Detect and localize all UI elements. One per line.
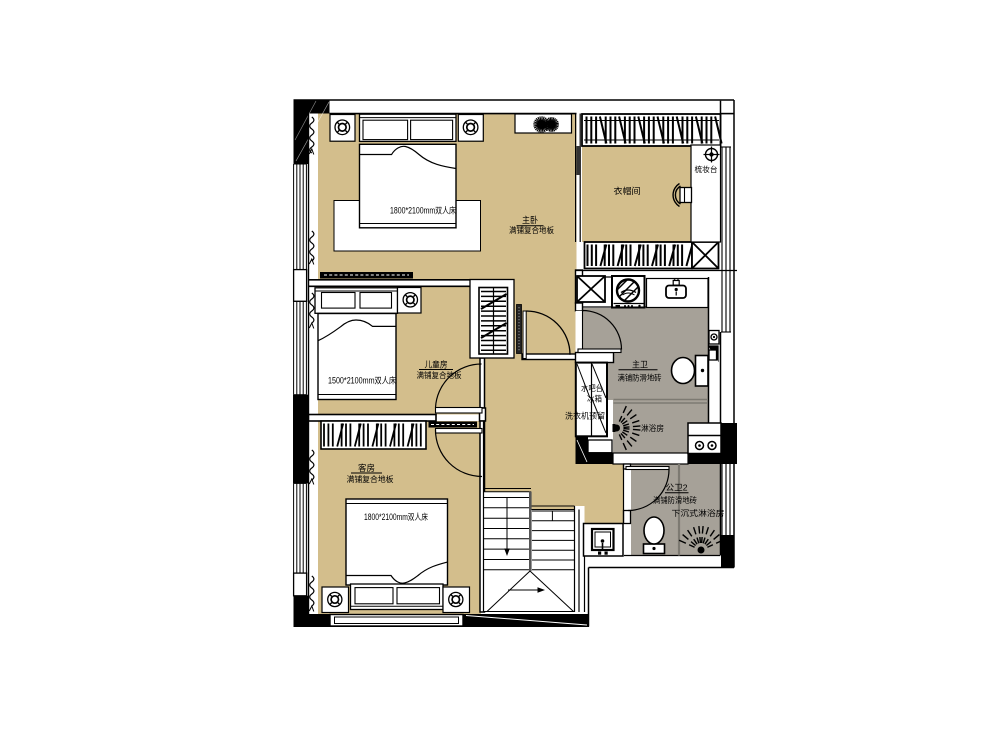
svg-text:满铺复合地板: 满铺复合地板 bbox=[417, 370, 462, 380]
svg-text:洗衣机预留: 洗衣机预留 bbox=[565, 411, 605, 421]
svg-text:满铺复合地板: 满铺复合地板 bbox=[347, 474, 394, 484]
svg-text:梳妆台: 梳妆台 bbox=[695, 164, 718, 174]
svg-text:满铺防滑地砖: 满铺防滑地砖 bbox=[618, 373, 662, 383]
svg-text:下沉式淋浴房: 下沉式淋浴房 bbox=[672, 508, 725, 518]
svg-text:满铺防滑地砖: 满铺防滑地砖 bbox=[653, 495, 697, 505]
svg-text:客房: 客房 bbox=[358, 462, 375, 473]
svg-text:1800*2100mm双人床: 1800*2100mm双人床 bbox=[364, 511, 428, 522]
svg-text:主卫: 主卫 bbox=[632, 360, 648, 370]
svg-text:公卫2: 公卫2 bbox=[666, 483, 688, 493]
svg-text:1500*2100mm双人床: 1500*2100mm双人床 bbox=[328, 375, 396, 386]
svg-text:衣帽间: 衣帽间 bbox=[614, 186, 641, 196]
svg-text:儿童房: 儿童房 bbox=[425, 359, 448, 370]
svg-text:满铺复合地板: 满铺复合地板 bbox=[509, 225, 554, 235]
svg-text:主卧: 主卧 bbox=[522, 215, 538, 225]
svg-text:冰箱: 冰箱 bbox=[587, 394, 602, 404]
svg-text:淋浴房: 淋浴房 bbox=[641, 423, 664, 433]
svg-text:1800*2100mm双人床: 1800*2100mm双人床 bbox=[390, 205, 456, 216]
svg-text:水吧台: 水吧台 bbox=[581, 383, 603, 393]
